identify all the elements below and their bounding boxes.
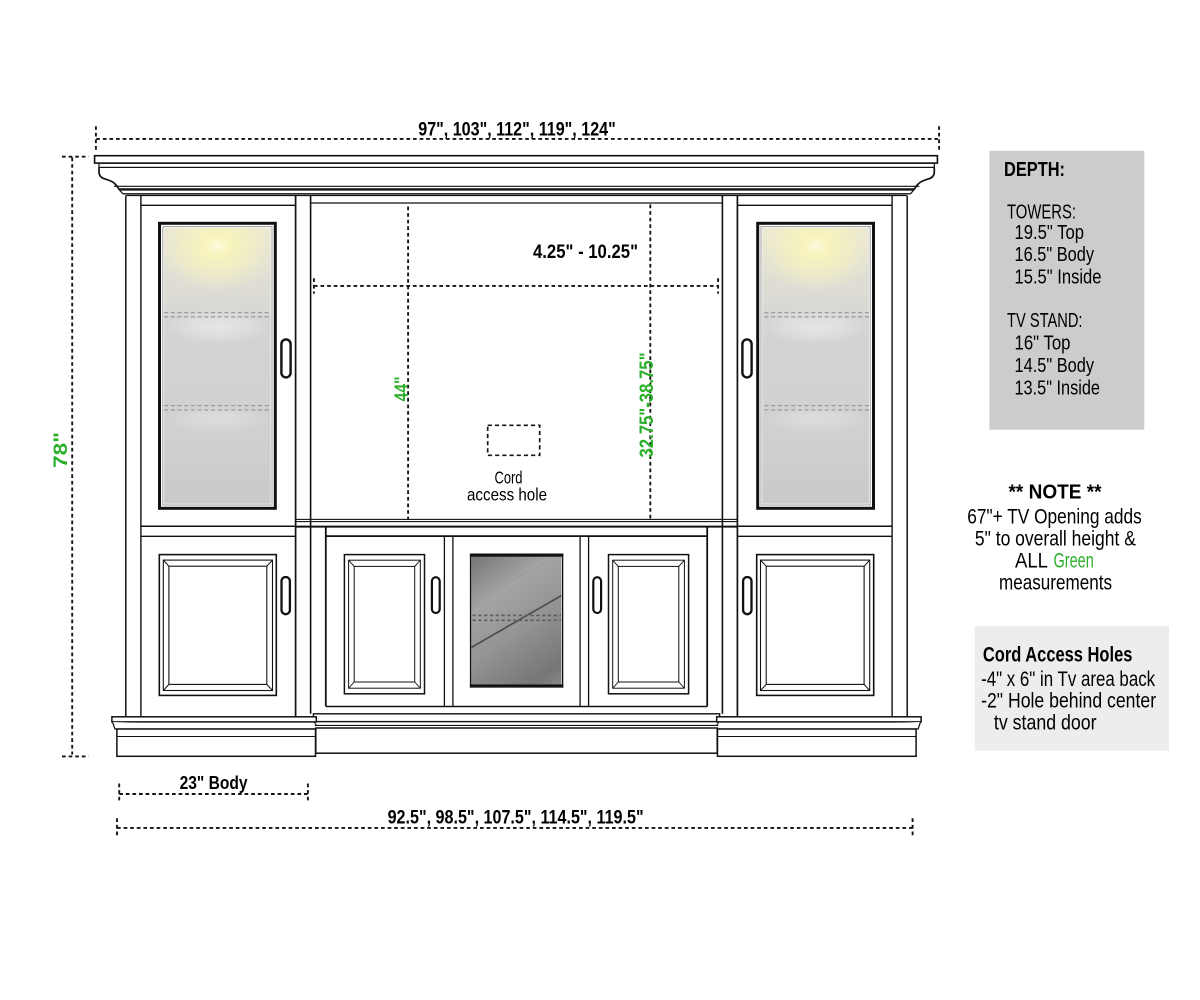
svg-text:access hole: access hole bbox=[467, 484, 547, 504]
svg-text:-2" Hole behind center: -2" Hole behind center bbox=[981, 689, 1156, 712]
svg-text:32.75"-38.75": 32.75"-38.75" bbox=[637, 353, 658, 458]
svg-text:measurements: measurements bbox=[999, 572, 1112, 595]
svg-text:78": 78" bbox=[50, 432, 72, 468]
svg-text:5" to overall height &: 5" to overall height & bbox=[975, 528, 1136, 551]
svg-text:Green: Green bbox=[1054, 550, 1094, 573]
svg-text:** NOTE **: ** NOTE ** bbox=[1009, 481, 1102, 504]
svg-text:TV STAND:: TV STAND: bbox=[1007, 310, 1083, 332]
svg-text:67"+ TV Opening adds: 67"+ TV Opening adds bbox=[967, 505, 1142, 528]
svg-text:44": 44" bbox=[390, 376, 411, 401]
svg-text:4.25" - 10.25": 4.25" - 10.25" bbox=[533, 242, 638, 263]
svg-text:15.5" Inside: 15.5" Inside bbox=[1015, 266, 1102, 288]
svg-text:14.5" Body: 14.5" Body bbox=[1015, 355, 1095, 377]
svg-text:16" Top: 16" Top bbox=[1015, 333, 1071, 355]
svg-text:ALL: ALL bbox=[1015, 550, 1048, 573]
svg-text:92.5", 98.5", 107.5", 114.5",: 92.5", 98.5", 107.5", 114.5", 119.5" bbox=[388, 808, 644, 829]
svg-text:tv stand door: tv stand door bbox=[994, 711, 1097, 734]
svg-text:-4" x 6" in Tv area back: -4" x 6" in Tv area back bbox=[981, 668, 1155, 691]
svg-text:13.5" Inside: 13.5" Inside bbox=[1015, 377, 1101, 399]
svg-text:DEPTH:: DEPTH: bbox=[1004, 159, 1065, 181]
svg-text:TOWERS:: TOWERS: bbox=[1007, 201, 1076, 223]
svg-text:97", 103", 112", 119", 124": 97", 103", 112", 119", 124" bbox=[418, 119, 616, 140]
svg-text:23" Body: 23" Body bbox=[180, 773, 248, 793]
svg-text:19.5" Top: 19.5" Top bbox=[1015, 222, 1085, 244]
svg-text:Cord Access Holes: Cord Access Holes bbox=[983, 643, 1133, 666]
svg-text:16.5" Body: 16.5" Body bbox=[1015, 244, 1095, 266]
